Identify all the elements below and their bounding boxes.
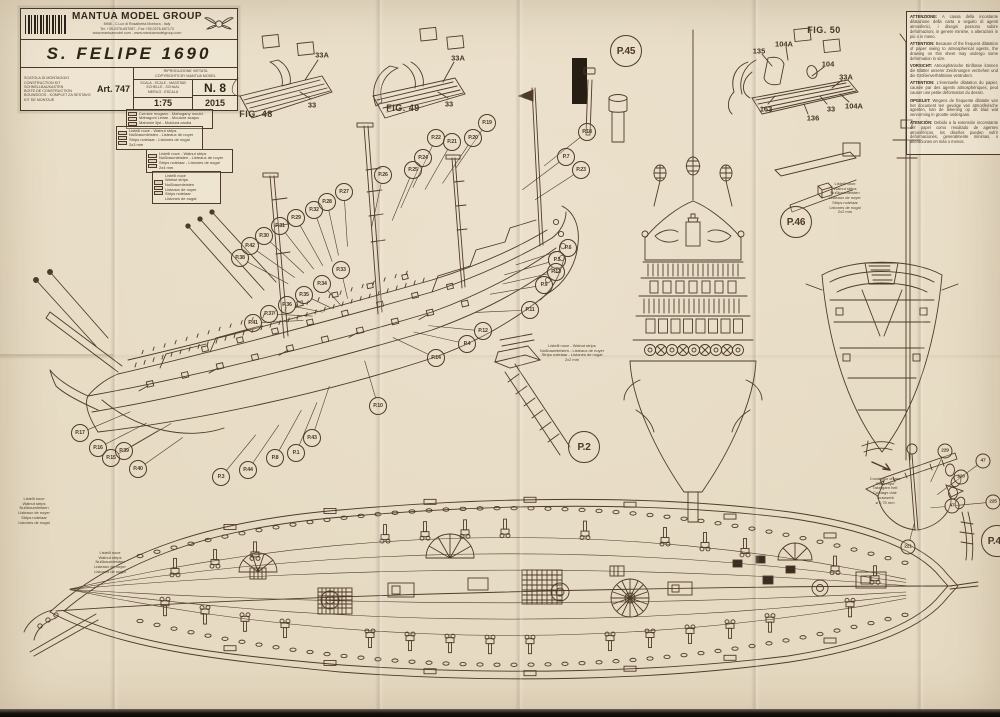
part-number-label: 136 (807, 114, 820, 123)
ship-name-title: S. FELIPE 1690 (47, 44, 212, 64)
part-number-label: 33A (451, 54, 465, 63)
part-callout: P.19 (478, 114, 496, 132)
wood-strip-icon (154, 180, 163, 195)
brand-block: MANTUA MODEL GROUP MM8 - C.Lux di Rosalb… (70, 12, 204, 36)
title-block: MANTUA MODEL GROUP MM8 - C.Lux di Rosalb… (20, 8, 238, 111)
scan-edge (0, 709, 1000, 717)
material-legend: Listelli noceWalnut stripsNußbaumleisten… (8, 497, 60, 525)
part-callout: P.40 (129, 460, 147, 478)
part-callout: 225 (986, 495, 1000, 510)
part-callout: P.8 (266, 449, 284, 467)
stern-view (624, 30, 762, 522)
brand-name: MANTUA MODEL GROUP (70, 12, 204, 22)
part-callout: P.12 (474, 322, 492, 340)
part-callout: 220 (954, 470, 969, 485)
figure-label: FIG. 48 (239, 109, 273, 119)
stern-lanterns (654, 157, 732, 206)
part-callout: P.1 (287, 444, 305, 462)
part-callout: P.4 (458, 335, 476, 353)
part-callout: P.43 (303, 429, 321, 447)
part-number-label: 33 (445, 100, 453, 109)
part-number-label: 33 (827, 105, 835, 114)
part-callout: 229 (938, 444, 953, 459)
part-number-label: 135 (753, 47, 766, 56)
material-legend: Cordaggio chiaroClear ropeTakelgarn hell… (862, 477, 908, 505)
part-callout: P.20 (464, 129, 482, 147)
deck-plan (24, 497, 978, 679)
part-callout: P.14 (427, 349, 445, 367)
part-callout: P.9 (535, 276, 553, 294)
part-callout: P.23 (572, 161, 590, 179)
part-callout: P.35 (295, 286, 313, 304)
part-callout: P.34 (313, 275, 331, 293)
fan-stairs (239, 534, 812, 572)
part-callout: P.7 (557, 148, 575, 166)
kit-description: SCATOLA DI MONTAGGIO CONSTRUCTION KIT SC… (21, 74, 94, 104)
part-callout: 47 (945, 499, 960, 514)
capstan (611, 579, 649, 617)
article-number: Art. 747 (94, 84, 133, 94)
part-number-label: 33A (839, 73, 853, 82)
part-callout: P.39 (115, 442, 133, 460)
part-callout: P.10 (369, 397, 387, 415)
part-number-label: 104A (775, 40, 793, 49)
material-legend: Listelli noceWalnut stripsNußbaumleisten… (816, 182, 874, 215)
brand-logo-icon (204, 14, 234, 34)
part-callout: P.17 (71, 424, 89, 442)
material-legend: Listelli noceWalnut stripsNußbaumleisten… (152, 171, 221, 204)
die-cut-marks (262, 31, 314, 59)
die-cut-slot (572, 58, 587, 104)
sheet-year: 2015 (193, 96, 237, 110)
fold-crease (0, 355, 1000, 360)
part-callout: P.18 (578, 123, 596, 141)
part-callout: P.41 (244, 314, 262, 332)
part-callout: P.29 (287, 209, 305, 227)
part-callout: 221 (901, 540, 916, 555)
part-number-label: 104A (845, 102, 863, 111)
part-callout: P.45 (610, 35, 642, 67)
scale-labels: SCALA - SCALE - MASSTAB ECHELLE - SCHAAL… (134, 80, 192, 98)
barcode (25, 15, 67, 34)
part-callout: P.21 (443, 133, 461, 151)
part-callout: P.44 (239, 461, 257, 479)
part-callout: P.37 (260, 305, 278, 323)
figure-label: FIG. 50 (807, 25, 841, 35)
part-callout: P.3 (212, 468, 230, 486)
grating (522, 570, 562, 604)
material-legend: Listelli noceWalnut stripsNußbaumleisten… (84, 551, 136, 575)
part-callout: P.33 (332, 261, 350, 279)
part-number-label: 163 (760, 105, 773, 114)
part-number-label: 33A (315, 51, 329, 60)
part-number-label: 104 (822, 60, 835, 69)
part-callout: P.24 (414, 149, 432, 167)
plan-sheet: MANTUA MODEL GROUP MM8 - C.Lux di Rosalb… (0, 0, 1000, 717)
part-callout: P.2 (568, 431, 600, 463)
copyright-note: RIPRODUZIONE VIETATA COPYRIGHTS BY MANTU… (134, 68, 237, 80)
part-callout: P.27 (335, 183, 353, 201)
part-callout: 47 (976, 454, 991, 469)
part-callout: P.46 (780, 206, 812, 238)
part-callout: P.36 (278, 296, 296, 314)
warning-box: ATTENZIONE: A causa della incostante dil… (906, 11, 1000, 155)
wood-strip-icon (118, 131, 127, 146)
part-callout: P.28 (318, 193, 336, 211)
part-callout: P.11 (521, 301, 539, 319)
material-legend: Listelli noce - Walnut stripsNußbaumleis… (146, 149, 233, 173)
wood-strip-icon (128, 112, 137, 127)
part-callout: P.30 (255, 227, 273, 245)
wood-strip-icon (148, 154, 157, 169)
material-legend: Listelli noce - Walnut stripsNußbaumleis… (116, 126, 203, 150)
material-legend: Listelli noce - Walnut stripsNußbaumleis… (528, 344, 616, 363)
part-callout: P.22 (427, 129, 445, 147)
part-callout: P.26 (374, 166, 392, 184)
part-number-label: 33 (308, 101, 316, 110)
figure-label: FIG. 49 (386, 103, 420, 113)
sheet-number: N. 8 (193, 80, 237, 96)
